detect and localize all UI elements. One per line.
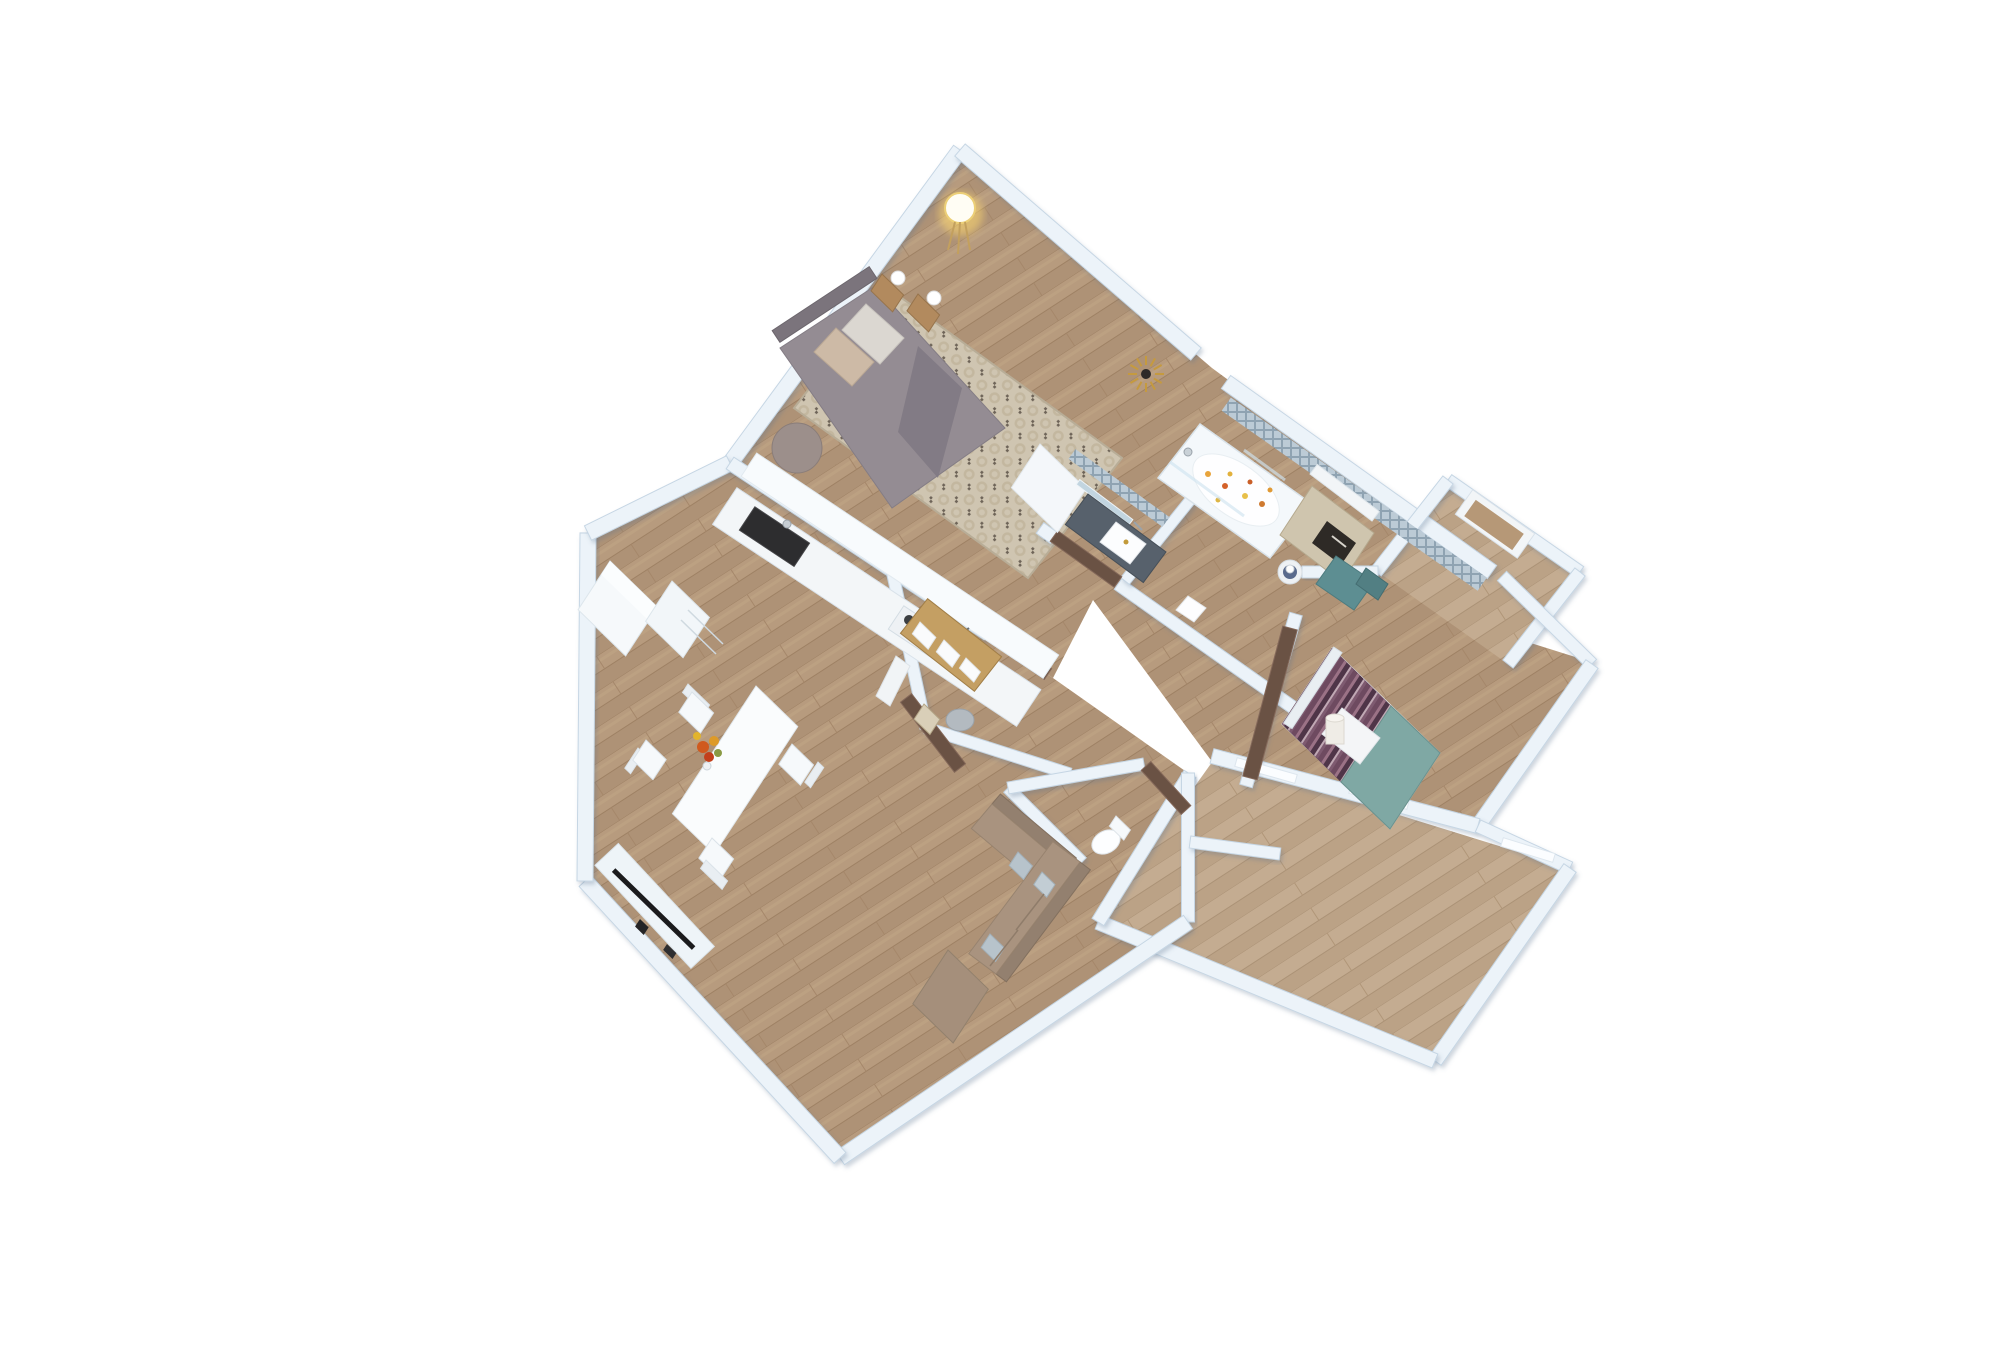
sunburst-center [1141,369,1151,379]
petal-3 [1242,493,1248,499]
kitchen-faucet [783,520,791,528]
flower-green [714,749,722,757]
petal-4 [1259,501,1265,507]
vanity-sink-drain [1124,540,1129,545]
shower-head [1184,448,1192,456]
floor-lamp-shade [945,193,975,223]
petal-8 [1268,488,1273,493]
sphere-lamp-2 [927,291,941,305]
sphere-lamp-1 [891,271,905,285]
flower-red [704,752,714,762]
petal-6 [1248,480,1253,485]
petal-5 [1228,472,1233,477]
floorplan-svg [40,16,2000,1349]
bedroom-pouf [772,423,822,473]
flower-vase [703,762,711,770]
floorplan-render [40,16,2000,1349]
closet-hamper [946,709,974,731]
wall-living-west [577,533,596,881]
petal-2 [1222,483,1228,489]
flower-orange-1 [697,741,709,753]
bed2-lamp-top [1326,714,1344,722]
teapot [1286,565,1294,573]
petal-1 [1205,471,1211,477]
flower-yellow-1 [709,736,719,746]
flower-yellow-2 [693,732,701,740]
